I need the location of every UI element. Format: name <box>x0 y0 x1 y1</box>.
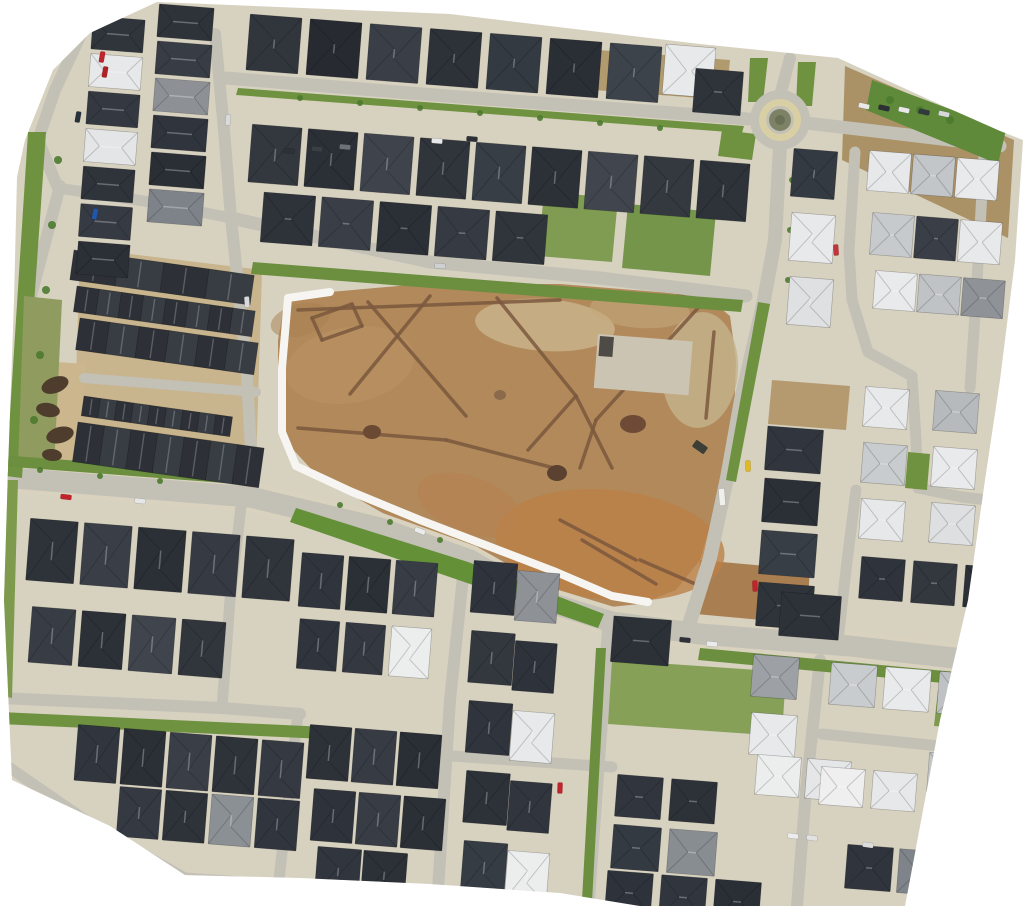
vehicle-17 <box>718 488 725 505</box>
vehicle-4 <box>283 148 294 154</box>
top-row-mid-house-4-ridge <box>498 167 499 180</box>
south-block-a-row-3-house-1 <box>351 728 397 785</box>
south-block-c-east-col-house-0 <box>750 654 799 699</box>
verge-roundabout-sw <box>718 130 756 160</box>
south-block-a-row-3-house-0 <box>306 724 352 781</box>
south-block-c-row-3-house-2-ridge <box>733 901 741 902</box>
se-row-2-house-2-hip-1 <box>948 875 969 898</box>
west-row-1-house-0 <box>26 518 79 584</box>
east-dark-column-house-0 <box>764 426 823 474</box>
sw-row-1-house-3 <box>212 736 258 795</box>
east-lawn-small <box>905 452 930 490</box>
west-row-1-house-2 <box>134 527 187 593</box>
east-row-560-house-2-roof <box>962 565 1009 610</box>
dirt-mound-0 <box>363 425 381 439</box>
se-row-2-house-2-hip-3 <box>974 877 995 900</box>
south-block-c-row-1-house-1-ridge <box>689 801 697 802</box>
east-white-col-1-house-1 <box>860 442 907 485</box>
south-block-b-col-2-house-4 <box>504 850 550 903</box>
top-row-mid-house-7 <box>640 156 694 218</box>
east-white-col-1 <box>858 386 909 541</box>
east-white-col-2-house-1-ridge <box>950 468 958 469</box>
vehicle-11 <box>434 263 445 269</box>
sw-row-2-house-3-ridge <box>277 818 278 830</box>
top-row-south-house-4 <box>492 211 548 265</box>
top-row-mid-house-1-ridge <box>330 153 331 166</box>
top-row-north-house-5-ridge <box>574 63 575 72</box>
nw-column-east-house-3 <box>151 115 208 152</box>
south-block-a-row-4-house-0 <box>310 788 356 843</box>
se-slab-row-house-1-ridge <box>889 791 899 792</box>
east-white-col-2-house-2 <box>928 502 975 545</box>
se-row-1-house-2-hip-2 <box>965 673 985 695</box>
south-block-a-row-1 <box>298 552 438 617</box>
south-block-c-row-1-house-0-ridge <box>635 797 643 798</box>
top-row-mid-house-0-ridge <box>274 149 275 162</box>
south-block-b-col-2-house-1-ridge <box>534 661 535 673</box>
se-row-1-house-1 <box>882 667 931 712</box>
east-white-col-2-house-0-ridge <box>952 412 960 413</box>
se-house-house-0 <box>926 752 973 795</box>
vehicle-7 <box>431 138 442 144</box>
east-white-col-1-house-0-ridge <box>882 408 890 409</box>
south-block-c-row-1-house-1 <box>668 779 717 824</box>
south-block-a-row-5-house-1-ridge <box>384 872 385 880</box>
south-block-a-row-2-house-0 <box>296 619 340 672</box>
se-row-1-house-2-hip-3 <box>963 694 983 716</box>
vehicle-24 <box>557 782 562 793</box>
south-block-a-row-3-house-2 <box>396 732 442 789</box>
scene-svg <box>0 0 1024 906</box>
se-house-house-0-ridge <box>946 774 954 775</box>
sw-row-2-house-0 <box>116 786 162 839</box>
top-row-north-house-4 <box>486 33 542 93</box>
south-block-c-east-col-house-1 <box>748 712 797 757</box>
se-row-1-house-2-ridge <box>957 694 965 695</box>
se-row-2-house-2-roof <box>948 853 997 900</box>
nw-column-east-house-5 <box>147 189 204 226</box>
south-block-a-row-1-house-1 <box>345 556 391 613</box>
west-row-1-house-3 <box>188 531 241 597</box>
south-block-b-col-1-house-3-ridge <box>486 792 487 804</box>
south-block-b-col-1-house-3 <box>463 770 511 825</box>
south-block-c-east-col-house-0-ridge <box>771 677 779 678</box>
tree-6 <box>357 100 363 106</box>
vehicle-29 <box>679 637 690 643</box>
top-row-south-house-4-ridge <box>517 238 524 239</box>
top-row-south-house-3 <box>434 206 490 260</box>
se-row-2-house-1 <box>896 849 945 896</box>
top-row-mid-house-5-ridge <box>554 171 555 184</box>
tree-14 <box>157 478 163 484</box>
dirt-mound-3 <box>494 390 506 400</box>
south-block-b-col-2-house-0 <box>514 570 560 623</box>
vehicle-6 <box>339 144 350 150</box>
tree-8 <box>477 110 483 116</box>
nw-column-west-house-4 <box>81 166 135 203</box>
south-block-a-row-5-house-0 <box>314 846 362 897</box>
top-row-south-house-2 <box>376 201 432 255</box>
roundabout-sw-house-house-0-ridge <box>714 92 722 93</box>
south-block-c-row-3-house-2 <box>712 879 761 906</box>
east-column-inner-house-0-ridge <box>814 170 815 178</box>
west-row-1-house-4 <box>242 536 295 602</box>
south-block-a-row-2 <box>296 619 432 679</box>
south-block-b-col-1-house-4 <box>460 840 508 895</box>
top-row-north-house-6-ridge <box>634 68 635 77</box>
top-row-north-house-4-ridge <box>514 59 515 68</box>
sw-row-1-house-0 <box>74 724 120 783</box>
vehicle-30 <box>706 641 717 647</box>
tree-4 <box>30 416 38 424</box>
south-block-c-row-3-house-0-ridge <box>625 893 633 894</box>
nw-column-east-house-1 <box>155 41 212 78</box>
ne-row-1-house-2 <box>954 158 999 201</box>
south-block-c-row-3-house-1-ridge <box>679 897 687 898</box>
nw-column-west-house-0 <box>91 16 145 53</box>
top-row-north-house-2-ridge <box>394 49 395 58</box>
se-row-1-house-2 <box>936 671 985 716</box>
south-block-a-row-2-house-1 <box>342 622 386 675</box>
top-row-south-house-2-ridge <box>401 228 408 229</box>
top-row-south-house-1-ridge <box>343 223 350 224</box>
south-block-a-row-5-house-0-ridge <box>338 868 339 876</box>
se-row-2-house-1-hip-2 <box>924 851 945 874</box>
south-block-b-col-2-house-3-ridge <box>529 801 530 813</box>
south-block-b-col-1-house-4-ridge <box>484 862 485 874</box>
top-row-south-house-0 <box>260 192 316 246</box>
vehicle-13 <box>134 498 146 504</box>
top-row-mid-house-6 <box>584 151 638 213</box>
ne-row-1-house-1 <box>910 154 955 197</box>
se-row-1-house-1-ridge <box>903 689 911 690</box>
top-row-south-house-1 <box>318 197 374 251</box>
nw-column-west-house-5 <box>78 204 132 241</box>
east-column-inner-house-2-ridge <box>810 298 811 306</box>
tree-16 <box>387 519 393 525</box>
ne-row-2-house-0 <box>869 212 914 257</box>
vehicle-12 <box>60 494 72 500</box>
gravel-pad-trailer <box>598 336 614 357</box>
east-row-560-house-0 <box>858 556 905 601</box>
top-row-mid-house-4 <box>472 142 526 204</box>
sw-row-2-house-3 <box>254 798 300 851</box>
east-column-inner <box>786 148 838 327</box>
top-row-mid-house-2-ridge <box>386 158 387 171</box>
sw-row-2-house-1-ridge <box>185 811 186 823</box>
top-row-mid-house-0 <box>248 124 302 186</box>
south-block-a-row-4 <box>310 788 446 851</box>
se-row-2-house-0-ridge <box>866 868 872 869</box>
sw-row-2-house-0-ridge <box>139 807 140 819</box>
nw-column-east-house-2 <box>153 78 210 115</box>
east-row-560-house-2 <box>962 565 1009 610</box>
south-block-b-col-1-house-1 <box>468 630 516 685</box>
top-row-south-house-0-ridge <box>285 219 292 220</box>
vehicle-18 <box>833 244 839 255</box>
ne-row-3-house-0 <box>873 270 918 311</box>
east-white-col-2-house-0 <box>932 390 979 433</box>
ne-row-3-house-0-ridge <box>891 291 899 292</box>
south-block-c-house-house-0 <box>610 616 671 666</box>
east-dark-large-house-0 <box>778 592 841 641</box>
top-row-mid-house-5 <box>528 147 582 209</box>
se-house-house-0-roof <box>926 752 973 795</box>
tree-12 <box>37 467 43 473</box>
south-block-c-row-3-house-1 <box>658 875 707 906</box>
nw-column-west-house-6 <box>76 241 130 278</box>
sw-row-1-house-2 <box>166 732 212 791</box>
top-row-mid-house-1 <box>304 129 358 191</box>
roundabout-sw-house-house-0 <box>692 68 743 116</box>
south-block-a-row-1-house-0 <box>298 552 344 609</box>
se-row-2-house-2-hip-0 <box>950 853 971 876</box>
south-block-b-col-2-house-3 <box>507 780 553 833</box>
east-row-560-house-2-hip-3 <box>987 588 1007 610</box>
south-block-b-col-1-house-2-ridge <box>489 722 490 734</box>
east-white-col-2 <box>928 390 979 545</box>
top-row-north-house-0-ridge <box>274 39 275 48</box>
top-row-mid-house-3 <box>416 138 470 200</box>
top-row-north-house-3 <box>426 28 482 88</box>
south-block-a-row-2-house-2 <box>388 626 432 679</box>
dirt-lot-east <box>768 380 850 430</box>
south-block-b-col-2-house-1 <box>512 640 558 693</box>
south-block-b-col-2-house-0-ridge <box>537 591 538 603</box>
se-row-2-house-1-ridge <box>918 872 924 873</box>
south-block-a-row-5-house-1 <box>360 850 408 901</box>
south-block-b-col-2-house-2 <box>509 710 555 763</box>
se-row-1-house-2-roof <box>936 671 985 716</box>
sw-row-2-house-2-ridge <box>231 815 232 827</box>
west-row-2-house-0 <box>28 606 76 665</box>
top-row-north-house-1-ridge <box>334 44 335 53</box>
south-block-b-col-2-house-4-ridge <box>527 871 528 883</box>
tree-13 <box>97 473 103 479</box>
west-row-1-house-1 <box>80 523 133 589</box>
top-row-mid-house-2 <box>360 133 414 195</box>
se-house-house-0-hip-3 <box>952 774 972 795</box>
east-white-col-1-house-2-ridge <box>878 520 886 521</box>
nw-column-west-house-2 <box>86 91 140 128</box>
vehicle-15 <box>745 460 750 471</box>
south-block-c-row-2-house-1-ridge <box>688 852 696 853</box>
ne-row-1-house-0 <box>866 150 911 193</box>
roundabout-island-planting <box>775 115 785 125</box>
south-block-c-east-col-house-1-ridge <box>769 735 777 736</box>
south-block-a-row-4-house-2 <box>400 796 446 851</box>
ne-row-3-house-1-ridge <box>935 294 943 295</box>
top-row-north-house-5 <box>546 38 602 98</box>
vehicle-5 <box>311 146 322 152</box>
top-row-south-house-3-ridge <box>459 233 466 234</box>
east-dark-column-house-1 <box>761 478 820 526</box>
tree-0 <box>54 156 62 164</box>
south-block-b-col-1-house-2 <box>465 700 513 755</box>
east-row-560-house-1 <box>910 561 957 606</box>
east-column-inner-house-0 <box>790 148 838 199</box>
south-block-c-house <box>610 616 671 666</box>
nw-column-east-house-0 <box>157 4 214 41</box>
south-block-a-row-1-house-2 <box>392 560 438 617</box>
nw-column-east-house-4 <box>149 152 206 189</box>
tree-10 <box>597 120 603 126</box>
west-row-2-house-3 <box>178 619 226 678</box>
dirt-mound-1 <box>547 465 567 481</box>
se-house-house-0-hip-2 <box>954 754 974 775</box>
east-white-col-2-house-1 <box>930 446 977 489</box>
se-row-2-house-2 <box>948 853 997 900</box>
se-row-2-house-1-hip-3 <box>922 873 943 896</box>
sw-row-2-house-1 <box>162 790 208 843</box>
west-row-2-house-1 <box>78 611 126 670</box>
east-column-inner-house-1 <box>788 212 836 263</box>
roundabout <box>750 90 810 150</box>
ne-row-2-house-1 <box>913 216 958 261</box>
tree-1 <box>48 221 56 229</box>
east-white-col-1-house-1-ridge <box>880 464 888 465</box>
roundabout-sw-house <box>692 68 743 116</box>
top-row-north-house-1 <box>306 19 362 79</box>
south-block-b-col-1-house-1-ridge <box>491 652 492 664</box>
top-row-mid-house-6-ridge <box>610 176 611 189</box>
se-row-2-house-2-ridge <box>970 877 976 878</box>
tree-17 <box>437 537 443 543</box>
south-block-b-col-1-house-0-ridge <box>494 582 495 594</box>
south-block-b-col-1-house-0 <box>470 560 518 615</box>
south-block-a-row-4-house-1 <box>355 792 401 847</box>
top-row-north-house-3-ridge <box>454 54 455 63</box>
sw-row-1-house-4 <box>258 740 304 799</box>
south-block-c-slabs-house-0-ridge <box>774 776 782 777</box>
se-row-1-house-0 <box>828 662 877 707</box>
nw-column-west-house-1 <box>88 54 142 91</box>
south-block-c-row-2-house-0-ridge <box>632 848 640 849</box>
tree-9 <box>537 115 543 121</box>
top-row-mid-house-7-ridge <box>666 180 667 193</box>
nw-column-west-house-3 <box>83 129 137 166</box>
sw-row-1-house-1 <box>120 728 166 787</box>
tree-5 <box>297 95 303 101</box>
ne-row-3-house-1 <box>917 274 962 315</box>
se-row-2-house-2-hip-2 <box>976 855 997 878</box>
top-row-mid-house-8 <box>696 160 750 222</box>
south-block-b-col-2-house-2-ridge <box>532 731 533 743</box>
se-row-1-house-0-ridge <box>849 685 857 686</box>
east-white-col-1-house-2 <box>858 498 905 541</box>
tree-3 <box>36 351 44 359</box>
vehicle-10 <box>225 114 231 125</box>
ne-row-3-house-2 <box>961 278 1006 319</box>
ne-row-3-house-2-ridge <box>979 298 987 299</box>
tree-18 <box>886 96 894 104</box>
south-block-c-row-2-house-0 <box>610 824 661 872</box>
south-block-a-row-3 <box>306 724 442 789</box>
east-white-col-2-house-2-ridge <box>948 524 956 525</box>
south-block-c-slabs-house-0 <box>754 754 801 797</box>
west-row-2-house-2 <box>128 615 176 674</box>
orthophoto-content <box>0 0 1024 906</box>
tree-2 <box>42 286 50 294</box>
top-row-north-house-2 <box>366 24 422 84</box>
east-white-col-1-house-0 <box>862 386 909 429</box>
south-block-c-row-1-house-0 <box>614 774 663 819</box>
east-column-inner-house-2 <box>786 276 834 327</box>
east-column-inner-house-1-ridge <box>812 234 813 242</box>
se-slab-row-house-1 <box>871 771 918 812</box>
top-row-north-house-0 <box>246 14 302 74</box>
south-block-c-row-2-house-1 <box>666 829 717 877</box>
top-row-mid-house-8-ridge <box>722 185 723 198</box>
tree-7 <box>417 105 423 111</box>
vehicle-8 <box>466 136 477 142</box>
tree-15 <box>337 502 343 508</box>
east-row-560-house-2-hip-2 <box>989 567 1009 589</box>
tree-11 <box>657 125 663 131</box>
sw-row-2-house-2 <box>208 794 254 847</box>
dirt-mound-2 <box>620 415 646 433</box>
east-dark-large <box>778 592 841 641</box>
se-slab-row-house-0 <box>819 766 866 807</box>
se-row-2-house-1-roof <box>896 849 945 896</box>
aerial-orthophoto <box>0 0 1024 906</box>
ne-row-2-house-2 <box>957 220 1002 265</box>
vehicle-28 <box>752 580 757 591</box>
vehicle-9 <box>244 296 250 307</box>
east-dark-column-house-2 <box>758 530 817 578</box>
se-row-2-house-0 <box>844 844 893 891</box>
south-block-a-row-5-house-1-hip-3 <box>382 880 405 901</box>
top-row-mid-house-3-ridge <box>442 162 443 175</box>
south-block-c-row-3-house-0 <box>604 870 653 906</box>
top-row-north-house-6 <box>606 43 662 103</box>
se-house <box>926 752 973 795</box>
se-slab-row-house-0-ridge <box>837 787 847 788</box>
